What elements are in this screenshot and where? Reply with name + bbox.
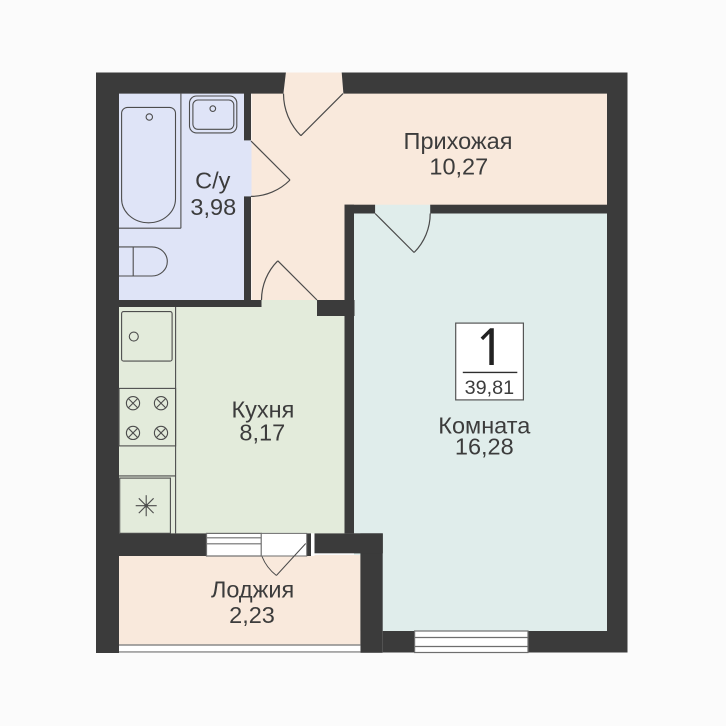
svg-text:16,28: 16,28 [455,434,514,460]
svg-text:Лоджия: Лоджия [211,576,294,602]
svg-text:39,81: 39,81 [465,377,515,399]
svg-text:10,27: 10,27 [429,154,488,180]
svg-text:С/у: С/у [195,167,231,193]
svg-text:2,23: 2,23 [229,602,275,628]
svg-text:3,98: 3,98 [190,194,236,220]
svg-text:Прихожая: Прихожая [404,128,513,154]
svg-text:8,17: 8,17 [239,419,285,445]
